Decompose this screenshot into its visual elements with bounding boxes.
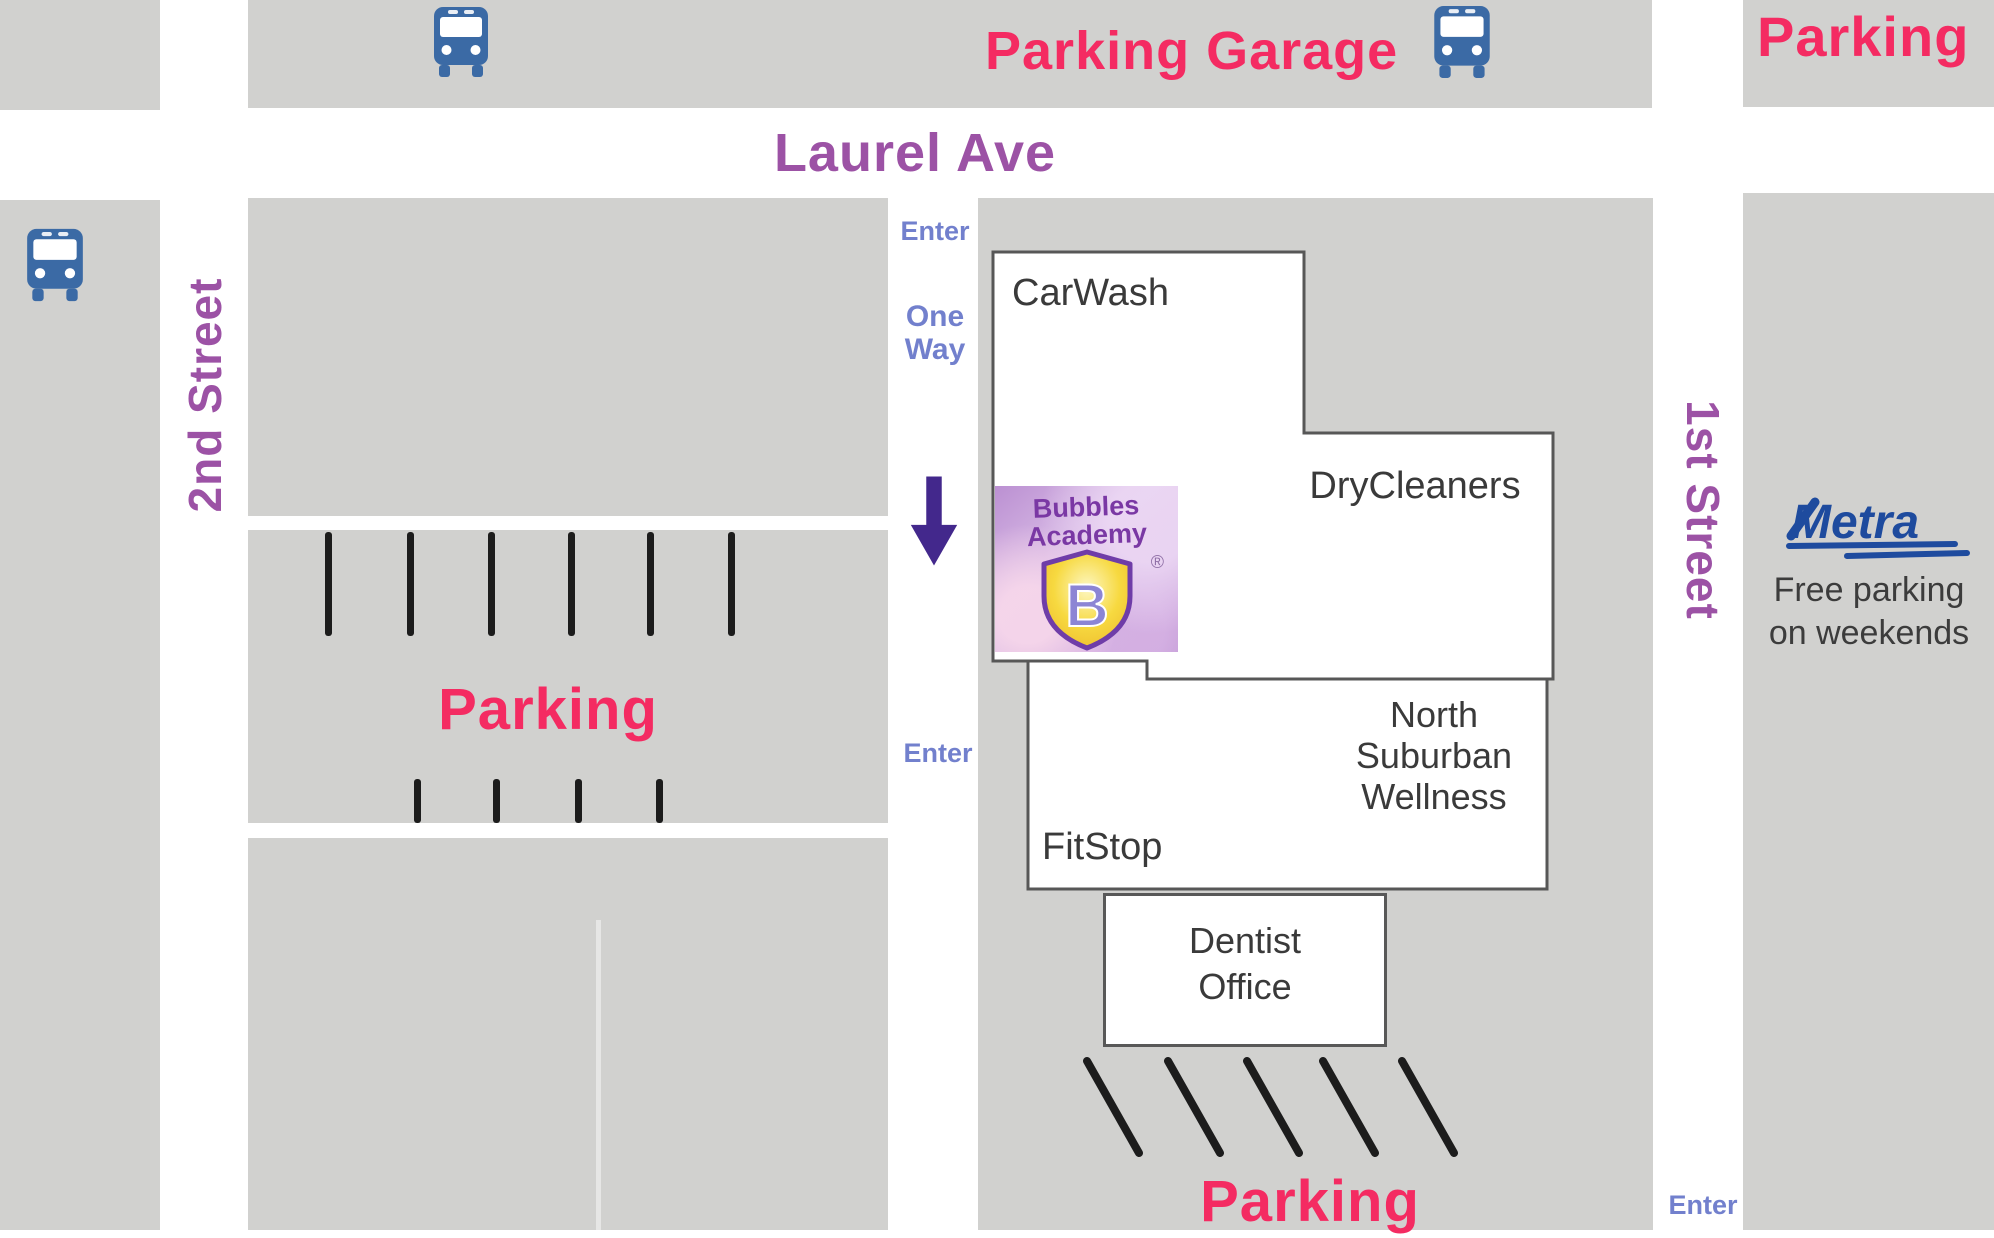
nsw-line3: Wellness (1309, 776, 1559, 817)
parking-stripe (568, 532, 575, 636)
block-top-left (0, 0, 160, 110)
arrow-down-icon (905, 475, 963, 567)
fitstop-label: FitStop (1042, 826, 1162, 869)
registered-trademark: ® (1151, 552, 1164, 573)
drycleaners-label: DryCleaners (1265, 465, 1565, 508)
nsw-line1: North (1309, 694, 1559, 735)
logo-monogram: B (1065, 572, 1108, 639)
nsw-line2: Suburban (1309, 735, 1559, 776)
north-suburban-wellness-label: North Suburban Wellness (1309, 694, 1559, 817)
carwash-label: CarWash (1012, 272, 1169, 315)
metra-note: Free parking on weekends (1748, 569, 1990, 655)
dentist-line1: Dentist (1106, 918, 1384, 964)
parking-stripe (493, 779, 500, 823)
one-way-sign: One Way (885, 300, 985, 366)
parking-label-south-lot: Parking (1160, 1168, 1460, 1235)
block-west-lot-lower (248, 838, 888, 1230)
enter-label-west-lot: Enter (888, 738, 988, 769)
street-label-1st-street: 1st Street (1681, 335, 1725, 685)
block-west-lot-upper (248, 198, 888, 516)
parking-stripe (575, 779, 582, 823)
street-label-laurel-ave: Laurel Ave (750, 122, 1080, 184)
parking-label-west-lot: Parking (398, 676, 698, 743)
parking-stripe (414, 779, 421, 823)
lane-divider (596, 920, 601, 1230)
one-way-line2: Way (885, 333, 985, 366)
parking-stripe (647, 532, 654, 636)
block-west-column (0, 200, 160, 1230)
metra-area: Metra Free parking on weekends (1748, 492, 1990, 655)
bus-icon (1428, 4, 1496, 80)
parking-map: Laurel Ave 2nd Street 1st Street Parking… (0, 0, 1994, 1238)
bubbles-academy-logo: Bubbles Academy ® B (995, 486, 1178, 652)
metra-note-line2: on weekends (1748, 612, 1990, 655)
dentist-office-label: Dentist Office (1106, 896, 1384, 1010)
shield-badge-icon: B (1039, 548, 1135, 652)
one-way-line1: One (885, 300, 985, 333)
metra-logo: Metra (1759, 492, 1979, 564)
dentist-line2: Office (1106, 964, 1384, 1010)
bus-icon (426, 5, 496, 79)
angled-parking-stripes (1080, 1056, 1465, 1158)
parking-stripe (728, 532, 735, 636)
parking-stripe (488, 532, 495, 636)
enter-label-south: Enter (1653, 1190, 1753, 1221)
metra-note-line1: Free parking (1748, 569, 1990, 612)
parking-stripe (325, 532, 332, 636)
parking-stripe (407, 532, 414, 636)
parking-stripe (656, 779, 663, 823)
parking-label-north-east: Parking (1757, 4, 1969, 69)
bus-icon (22, 226, 88, 304)
bubbles-academy-wordmark: Bubbles Academy (995, 490, 1178, 552)
block-east (1743, 193, 1994, 1230)
street-label-2nd-street: 2nd Street (183, 265, 227, 525)
parking-garage-label: Parking Garage (985, 20, 1398, 82)
enter-label-laurel: Enter (885, 216, 985, 247)
building-dentist-office: Dentist Office (1103, 893, 1387, 1047)
